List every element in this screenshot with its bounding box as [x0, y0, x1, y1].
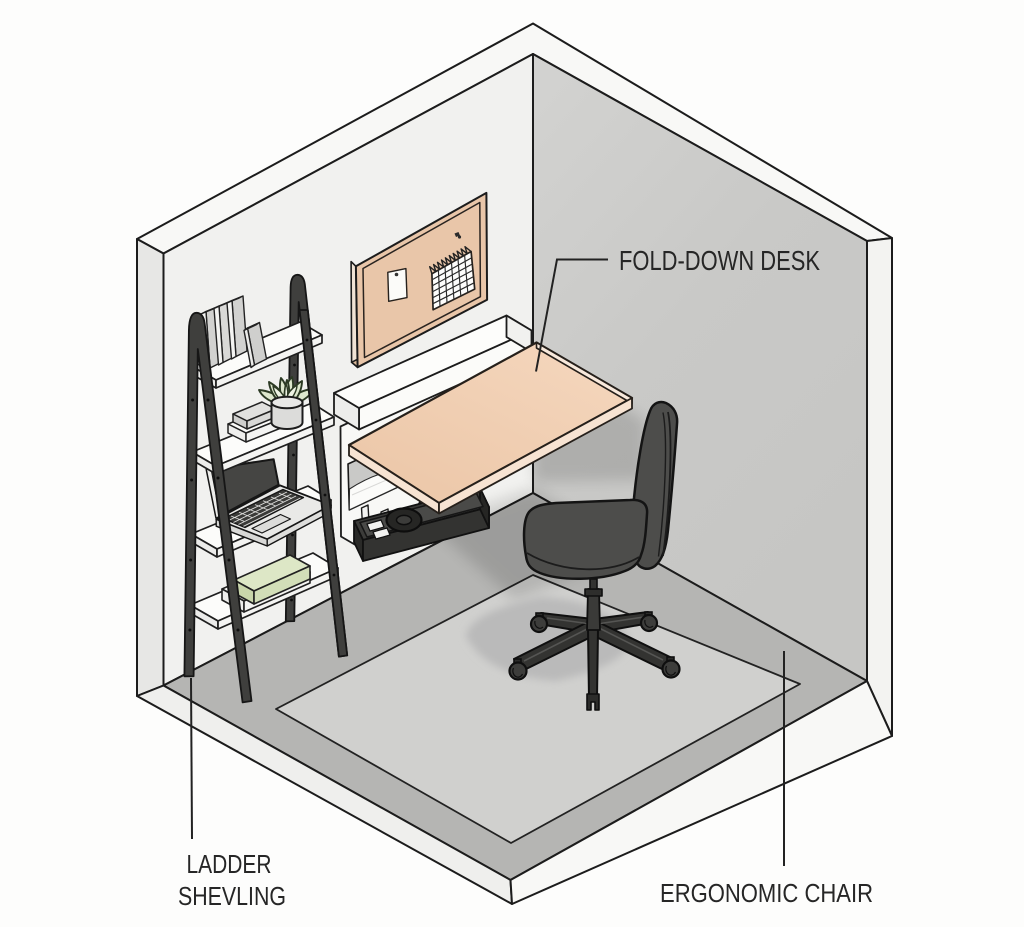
svg-text:SHEVLING: SHEVLING	[178, 883, 286, 911]
svg-text:ERGONOMIC CHAIR: ERGONOMIC CHAIR	[660, 880, 873, 908]
svg-text:FOLD-DOWN DESK: FOLD-DOWN DESK	[619, 245, 820, 276]
svg-text:LADDER: LADDER	[187, 851, 272, 879]
